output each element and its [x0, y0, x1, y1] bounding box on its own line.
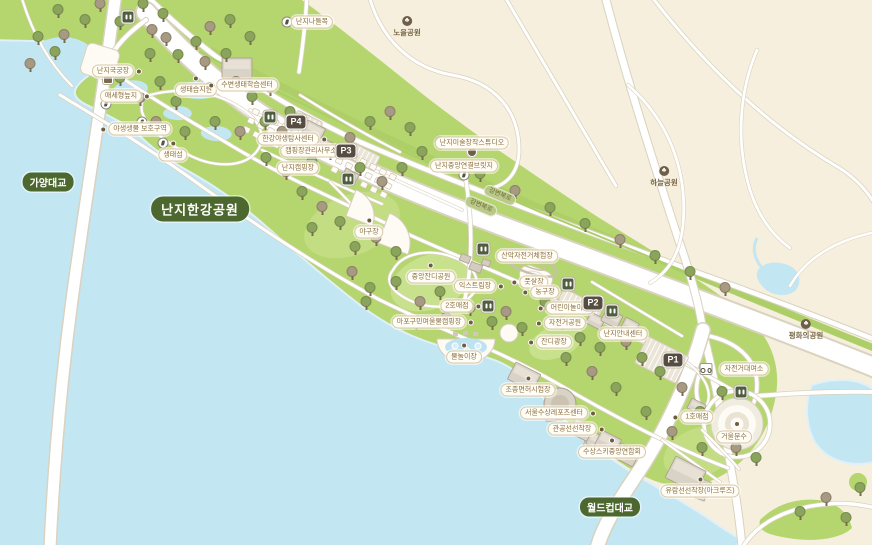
gayang-bridge-badge: 가양대교 — [23, 173, 74, 192]
nanji-hangang-park-map: 난지국궁장매세형늪지야생생물 보호구역생태섬생태습지원수변생태학습센터난지나들목… — [0, 0, 872, 545]
worldcup-bridge-badge: 월드컵대교 — [580, 498, 640, 517]
badges-layer: 가양대교 난지한강공원 월드컵대교 — [0, 0, 872, 545]
park-title-badge: 난지한강공원 — [151, 197, 249, 222]
